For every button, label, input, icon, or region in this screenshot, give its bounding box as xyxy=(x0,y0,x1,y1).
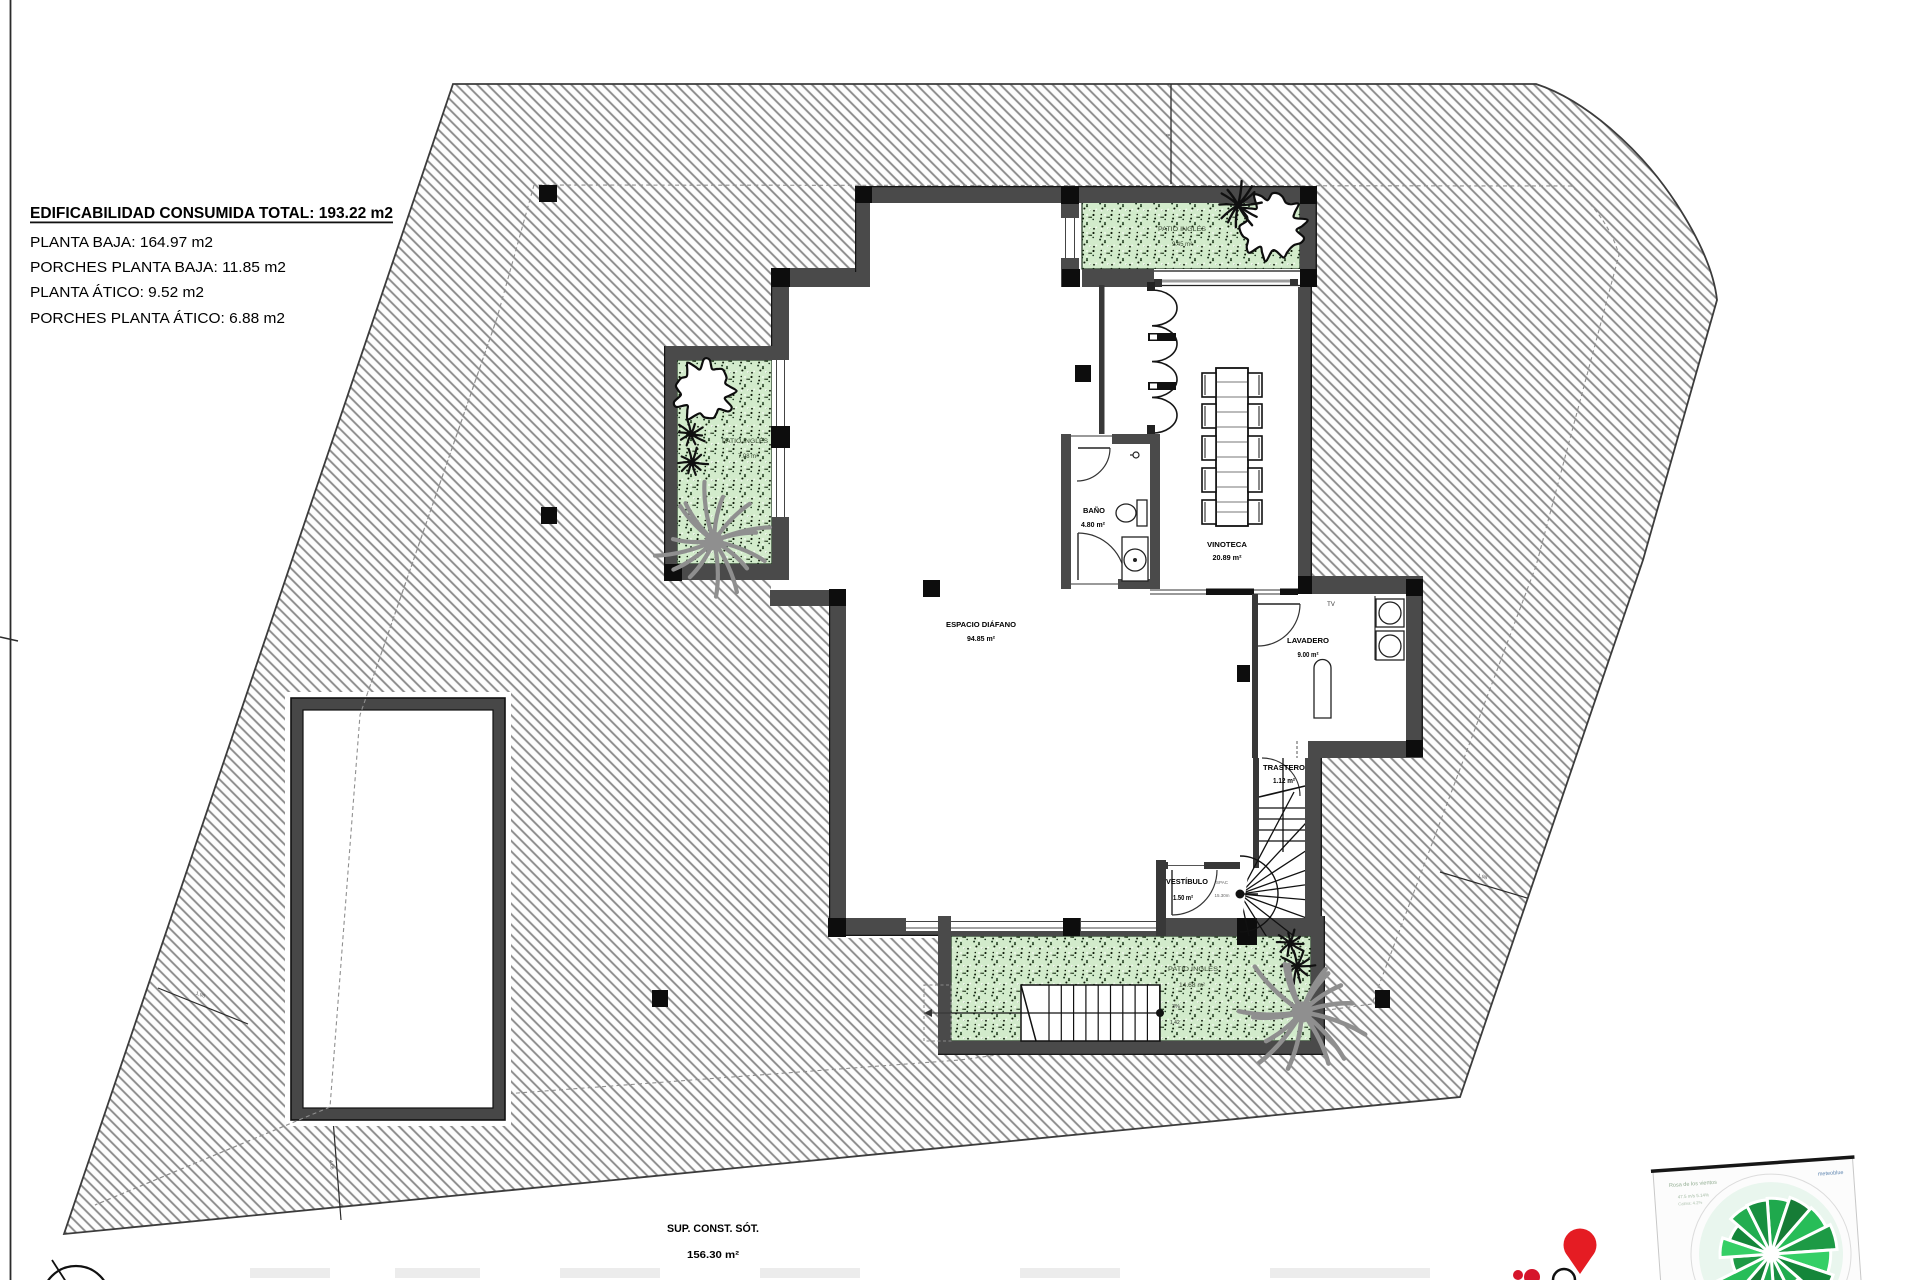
svg-text:TRASTERO: TRASTERO xyxy=(1263,763,1305,772)
svg-text:LAVADERO: LAVADERO xyxy=(1287,636,1329,645)
svg-text:7.08 m²: 7.08 m² xyxy=(738,453,759,460)
svg-text:VINOTECA: VINOTECA xyxy=(1207,540,1248,549)
svg-text:94.85 m²: 94.85 m² xyxy=(967,636,996,643)
svg-text:VESTÍBULO: VESTÍBULO xyxy=(1166,877,1208,886)
svg-text:9.00 m²: 9.00 m² xyxy=(1298,652,1320,659)
svg-text:EDIFICABILIDAD CONSUMIDA TOTAL: EDIFICABILIDAD CONSUMIDA TOTAL: 193.22 m… xyxy=(30,205,393,222)
svg-text:TV: TV xyxy=(1327,602,1335,608)
svg-text:1.50 m²: 1.50 m² xyxy=(1173,895,1194,902)
svg-text:BAÑO: BAÑO xyxy=(1083,506,1105,515)
svg-text:PATIO INGLÉS: PATIO INGLÉS xyxy=(1168,964,1219,973)
svg-text:20.89 m²: 20.89 m² xyxy=(1213,555,1243,562)
svg-text:4.80 m²: 4.80 m² xyxy=(1081,522,1106,529)
svg-text:SPAC: SPAC xyxy=(1216,880,1229,885)
svg-text:1.12 m²: 1.12 m² xyxy=(1273,778,1296,785)
svg-text:PORCHES PLANTA ÁTICO: 6.88 m2: PORCHES PLANTA ÁTICO: 6.88 m2 xyxy=(30,310,285,327)
svg-text:ESPACIO DIÁFANO: ESPACIO DIÁFANO xyxy=(946,620,1016,629)
svg-text:PORCHES PLANTA BAJA: 11.85 m2: PORCHES PLANTA BAJA: 11.85 m2 xyxy=(30,259,286,276)
svg-text:8: 8 xyxy=(1164,134,1170,137)
svg-text:14.68 m²: 14.68 m² xyxy=(1179,982,1206,989)
svg-text:PATIO INGLÉS: PATIO INGLÉS xyxy=(1158,224,1206,233)
svg-text:9.45 m²: 9.45 m² xyxy=(1172,241,1193,248)
svg-text:PATIO INGLÉS: PATIO INGLÉS xyxy=(722,436,768,445)
svg-text:PLANTA ÁTICO: 9.52 m2: PLANTA ÁTICO: 9.52 m2 xyxy=(30,284,204,301)
svg-text:15.30m: 15.30m xyxy=(1214,893,1229,898)
svg-text:1.42: 1.42 xyxy=(1170,1020,1180,1026)
svg-text:SUP. CONST. SÓT.: SUP. CONST. SÓT. xyxy=(667,1222,759,1235)
svg-text:156.30 m²: 156.30 m² xyxy=(687,1249,740,1261)
svg-text:PLANTA BAJA: 164.97 m2: PLANTA BAJA: 164.97 m2 xyxy=(30,234,213,251)
svg-text:3%: 3% xyxy=(1172,1004,1180,1010)
